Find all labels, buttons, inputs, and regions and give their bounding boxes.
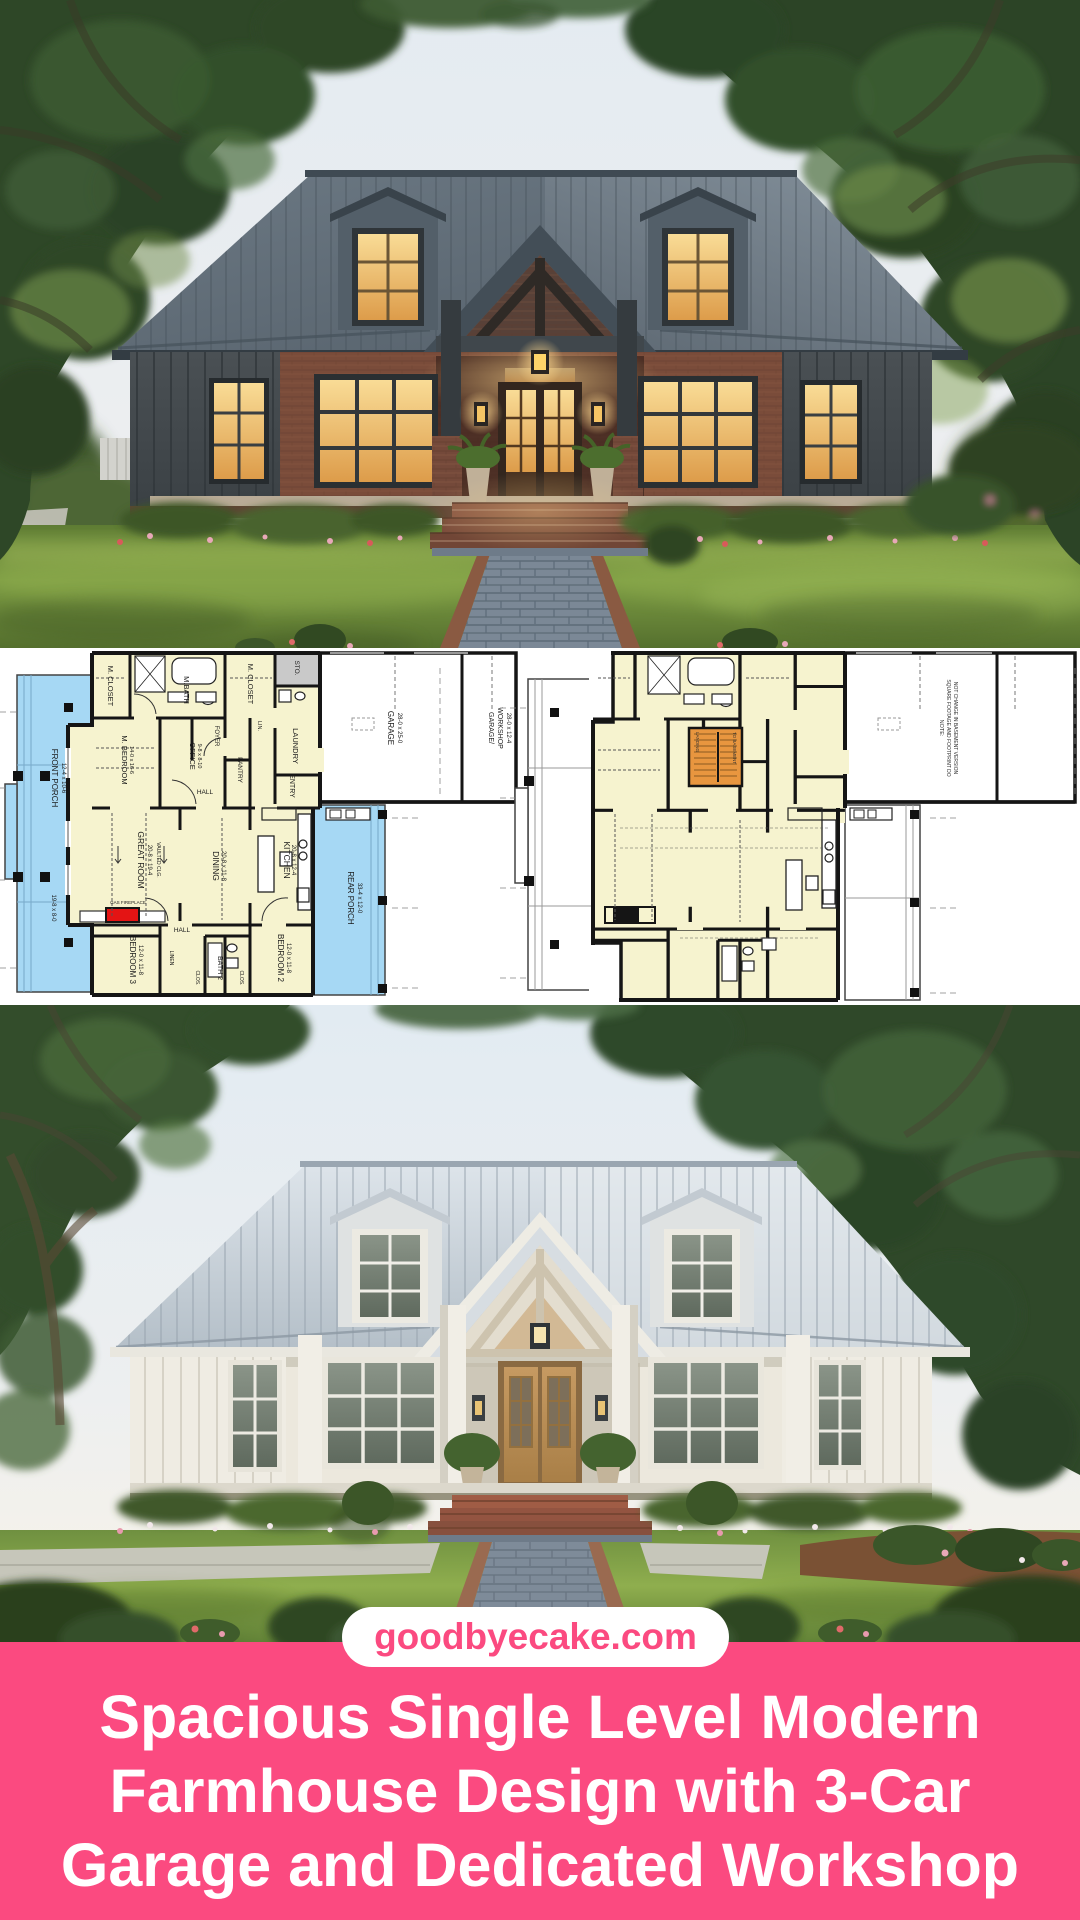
svg-text:28-0 x 12-4: 28-0 x 12-4 — [505, 713, 511, 744]
svg-text:GAS FIREPLACE: GAS FIREPLACE — [110, 900, 146, 905]
svg-text:FRONT PORCH: FRONT PORCH — [50, 749, 59, 808]
svg-text:33-4 x 12-0: 33-4 x 12-0 — [356, 883, 362, 914]
svg-text:REAR PORCH: REAR PORCH — [346, 871, 355, 925]
svg-text:M. BEDROOM: M. BEDROOM — [120, 735, 129, 784]
svg-text:NOTE:: NOTE: — [938, 720, 944, 737]
svg-text:CLOS.: CLOS. — [238, 970, 244, 985]
svg-text:M. CLOSET: M. CLOSET — [246, 664, 255, 705]
svg-text:GREAT ROOM: GREAT ROOM — [136, 831, 146, 888]
svg-text:GARAGE: GARAGE — [386, 711, 395, 745]
svg-text:ENTRY: ENTRY — [288, 774, 295, 798]
svg-text:BEDROOM 3: BEDROOM 3 — [128, 936, 137, 985]
svg-text:12-0 x 11-8: 12-0 x 11-8 — [137, 945, 143, 976]
svg-text:14-0 x 16-6: 14-0 x 16-6 — [128, 746, 134, 774]
svg-text:DINING: DINING — [211, 851, 221, 881]
svg-text:LAUNDRY: LAUNDRY — [291, 728, 300, 764]
svg-text:12-0 x 11-8: 12-0 x 11-8 — [285, 943, 291, 974]
svg-text:FOYER: FOYER — [213, 726, 219, 747]
svg-text:BATH 2: BATH 2 — [216, 956, 223, 980]
svg-text:CLOS.: CLOS. — [194, 970, 200, 985]
svg-text:HALL: HALL — [197, 789, 214, 796]
svg-text:M.BATH: M.BATH — [182, 676, 191, 704]
svg-text:NOT CHANGE IN BASEMENT VERSION: NOT CHANGE IN BASEMENT VERSION — [952, 682, 958, 775]
svg-text:20-8 x 19-4: 20-8 x 19-4 — [146, 845, 152, 876]
svg-text:20-8 x 12-4: 20-8 x 12-4 — [290, 845, 296, 876]
svg-text:LANDING: LANDING — [695, 732, 700, 753]
svg-text:M. CLOSET: M. CLOSET — [106, 666, 115, 707]
svg-text:LIN.: LIN. — [256, 721, 262, 732]
svg-text:HALL: HALL — [174, 927, 191, 934]
svg-text:VAULTED CLG.: VAULTED CLG. — [155, 842, 161, 877]
svg-text:BEDROOM 2: BEDROOM 2 — [276, 934, 285, 983]
svg-text:TO BASEMENT: TO BASEMENT — [732, 732, 737, 764]
svg-text:WORKSHOP: WORKSHOP — [496, 707, 503, 749]
svg-text:12-4 x 10-6: 12-4 x 10-6 — [60, 763, 66, 794]
svg-text:STO.: STO. — [293, 660, 300, 675]
svg-text:19-8 x 8-0: 19-8 x 8-0 — [50, 894, 56, 922]
svg-text:9-8 x 8-10: 9-8 x 8-10 — [196, 744, 202, 769]
svg-text:20-8 x 11-8: 20-8 x 11-8 — [220, 851, 226, 882]
svg-text:PANTRY: PANTRY — [236, 757, 243, 783]
svg-text:OFFICE: OFFICE — [188, 742, 197, 770]
svg-text:SQUARE FOOTAGE AND FOOTPRINT D: SQUARE FOOTAGE AND FOOTPRINT DO — [945, 679, 951, 776]
svg-text:28-0 x 25-0: 28-0 x 25-0 — [396, 713, 402, 744]
svg-text:LINEN: LINEN — [168, 951, 174, 966]
svg-text:GARAGE/: GARAGE/ — [487, 712, 494, 744]
